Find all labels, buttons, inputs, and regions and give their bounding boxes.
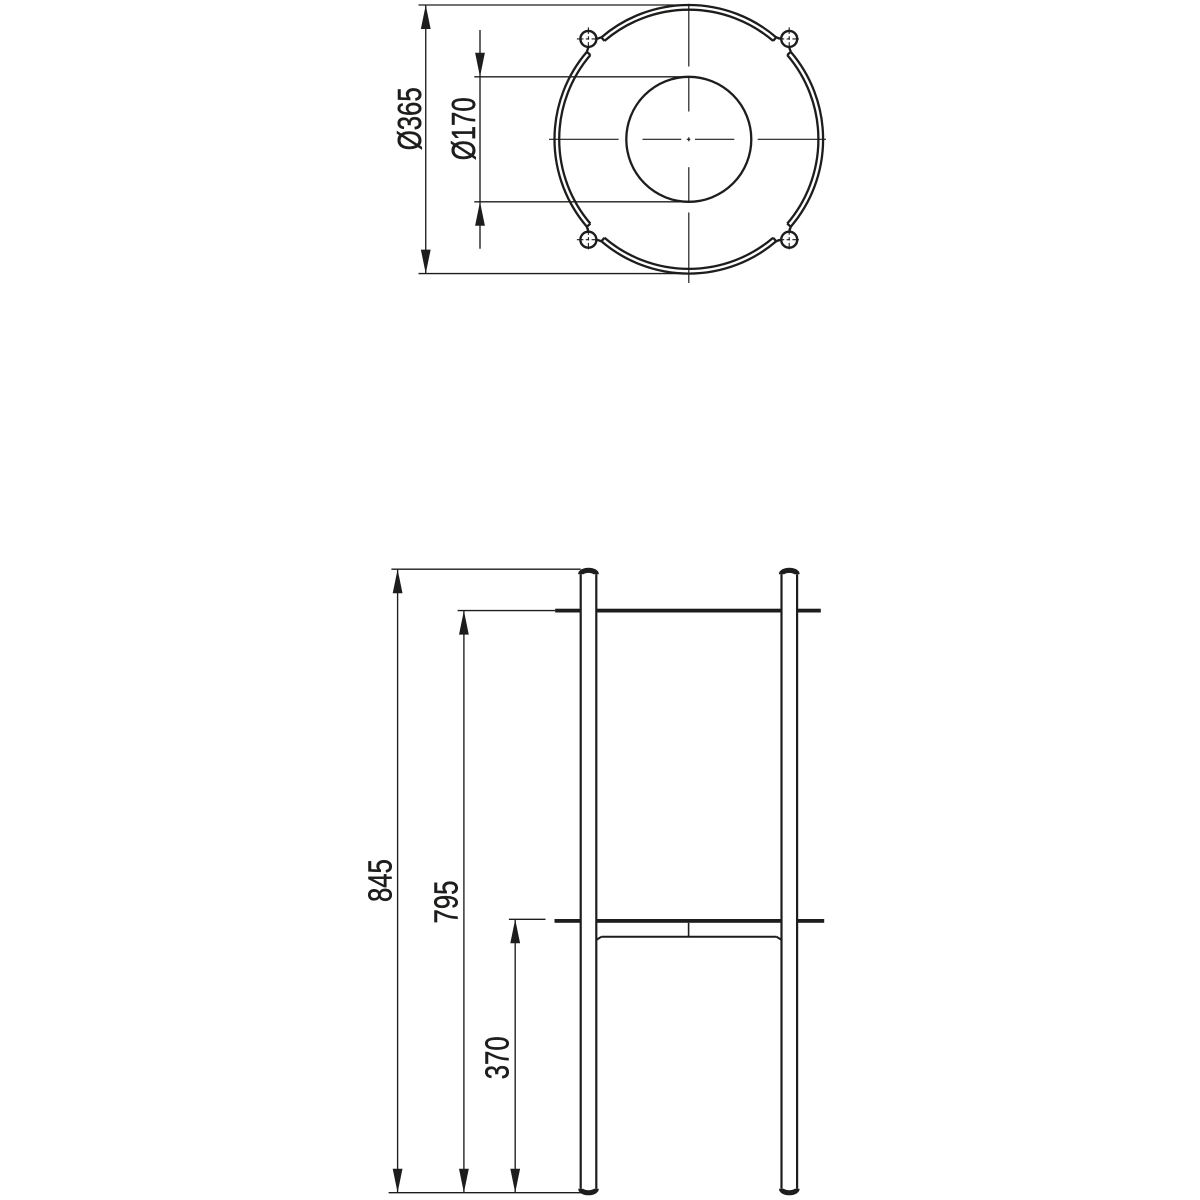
- svg-text:Ø365: Ø365: [392, 87, 429, 150]
- svg-text:370: 370: [479, 1036, 516, 1079]
- svg-text:845: 845: [362, 859, 399, 902]
- svg-text:Ø170: Ø170: [446, 97, 483, 160]
- svg-text:795: 795: [428, 881, 465, 924]
